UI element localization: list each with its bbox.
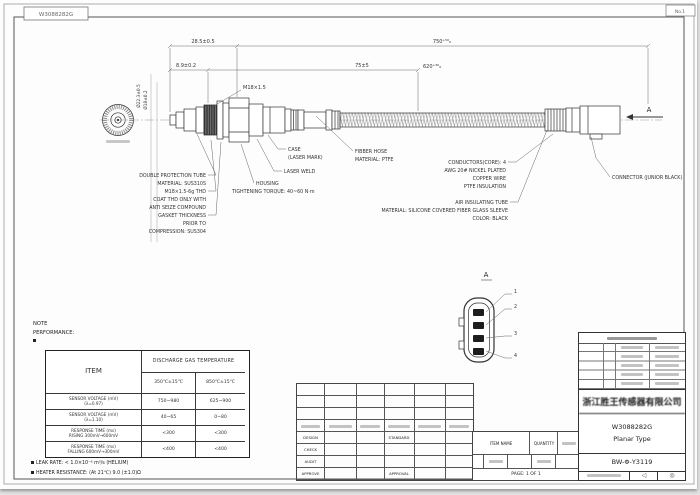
part-type: Planar Type [613,435,650,443]
callout-conductors-4: PTFE INSULATION [464,184,507,190]
perf-col2-header: 850℃±15℃ [195,372,245,393]
upper-shell [249,104,263,136]
perf-r1-v2: 0~80 [195,409,245,425]
callout-hose-1: FIBBER HOSE [355,149,387,155]
performance-label: PERFORMANCE: [33,329,74,338]
case [263,107,285,133]
callout-conductors-3: COPPER WIRE [473,176,506,182]
materials-header-blur [607,337,657,340]
part-name-box: W3088282G Planar Type [579,413,685,454]
perf-r2-v2: <300 [195,425,245,441]
connector-latch [590,134,602,139]
doc-number-box: W3088282G [24,7,88,20]
grid-line [414,384,415,480]
end-view-caption-blur [106,140,130,143]
dim-tip-length: 28.5±0.5 [191,39,214,45]
callout-thread-3: ANTI SEIZE COMPOUND [149,205,206,211]
callout-protection-tube-1: DOUBLE PROTECTION TUBE [139,173,206,179]
pin-label-3: 3 [514,331,517,337]
gasket-washer [217,101,223,139]
parts-item-name-header: ITEM NAME [473,432,529,454]
sensor-side-view [170,98,620,142]
bullet-notes: LEAK RATE: < 1.0×10⁻⁶ m³/s (HELIUM) HEAT… [31,459,141,478]
perf-r2-v1: <300 [141,425,195,441]
cell-blur [655,346,679,349]
sheet-number-text: No.1 [675,9,685,15]
perf-row-item: RESPONSE TIME (ms) RISING 300mV→600mV [46,425,141,441]
pin-label-4: 4 [514,353,517,359]
approval-row-design: DESIGN [297,432,324,444]
callouts-right: CONDUCTORS(CORE): 4 AWG 20# NICKEL PLATE… [444,134,682,190]
perf-item-header: ITEM [46,351,141,393]
parts-header-row: ITEM NAME QUANTITY [473,432,579,455]
header-blur [329,425,352,428]
cell-blur [489,460,503,463]
bullet-icon [31,461,34,464]
parts-sub-cell [555,454,580,468]
connector-tab-upper [459,318,464,326]
perf-r1-v1: 40~65 [141,409,195,425]
callout-gasket-3: COMPRESSION: SUS304 [149,229,206,235]
diameter-dimensions: Ø22.3±0.5 Ø18±0.2 [135,74,157,242]
cell-blur [621,382,643,385]
approval-row-audit: AUDIT [297,456,324,468]
protection-tube-tip [170,115,176,125]
callout-case-2: (LASER MARK) [288,155,323,161]
bullet-icon [31,471,34,474]
cell-blur [621,355,643,358]
cell-blur [655,364,679,367]
grid-line [445,384,446,480]
connector-neck [566,108,580,132]
pin-4 [473,348,484,355]
callout-air-tube-3: COLOR: BLACK [473,216,509,222]
approval-table: DESIGN STANDARD CHECK AUDIT APPROVE APPR… [296,383,474,481]
hex-housing [229,98,249,142]
thread-section [204,105,217,135]
parts-strip: ITEM NAME QUANTITY PAGE: 1 OF 1 [472,431,580,481]
dim-hose-length: 75±5 [355,63,369,69]
leak-rate-note: LEAK RATE: < 1.0×10⁻⁶ m³/s (HELIUM) [36,461,128,466]
callout-case-1: CASE [288,147,301,153]
perf-r1-item2: (λ=1.10) [84,418,103,423]
callout-conductors-1: CONDUCTORS(CORE): 4 [448,160,506,166]
title-block: 浙江胜王传感器有限公司 W3088282G Planar Type BW-Φ-Y… [578,332,686,481]
perf-r3-item2: FALLING 600mV→300mV [68,450,120,455]
parts-quantity-header: QUANTITY [529,432,558,454]
grid-line [649,343,650,389]
title-block-bottom-row: ◁ ◎ [579,471,685,480]
grid-line [324,384,325,480]
part-number: W3088282G [612,423,652,431]
parts-remark-header [557,432,580,454]
parts-sub-cell [507,454,532,468]
dim-cable-length: 620⁺³⁰₀ [423,64,441,70]
crimp-ring [291,110,298,130]
parts-page-row: PAGE: 1 OF 1 [473,468,579,480]
callout-gasket-2: PRIOR TO [183,221,206,227]
callout-laser-weld: LASER WELD [284,169,315,175]
header-blur [388,425,410,428]
pin-2 [473,322,484,329]
detail-view-a: A 1 2 3 4 [459,271,517,362]
callout-housing-2: TIGHTENING TORQUE: 40~60 N·m [231,189,315,195]
callout-thread-2: COAT THD ONLY WITH [153,197,206,203]
perf-r0-v1: 750~980 [141,393,195,409]
parts-sub-row [473,454,579,469]
materials-grid [579,343,685,389]
braided-cable [340,113,545,127]
section-arrow-a: A [626,106,663,120]
header-blur [360,425,380,428]
doc-number-text: W3088282G [39,12,73,18]
grid-line [356,384,357,480]
company-name: 浙江胜王传感器有限公司 [579,389,685,414]
callouts-left: DOUBLE PROTECTION TUBE MATERIAL: SUS310S… [139,134,221,235]
dim-thread-spec: M18×1.5 [243,85,266,91]
pin-1 [473,309,484,316]
grid-line [603,343,604,389]
connector-body [580,106,620,134]
approval-row-approve: APPROVE [297,468,324,480]
heater-resistance-note: HEATER RESISTANCE: (At 21℃) 9.0 (±1.0)Ω [36,471,141,476]
callout-connector: CONNECTOR (JUNIOR BLACK) [612,175,682,181]
projection-symbol-icon: ◁ [629,471,658,480]
dim-dia-hex: Ø22.3±0.5 [135,84,142,108]
perf-row-item: RESPONSE TIME (ms) FALLING 600mV→300mV [46,441,141,457]
header-blur [449,425,469,428]
callout-hose-2: MATERIAL: PTFE [355,157,393,163]
approval-design-note: STANDARD [384,432,414,444]
perf-row-item: SENSOR VOLTAGE (mV) (λ=0.97) [46,393,141,409]
standard-symbol-icon: ◎ [657,471,686,480]
cell-blur [655,382,679,385]
bullet-square [33,339,36,342]
perf-r0-v2: 625~900 [195,393,245,409]
cell-blur [621,346,643,349]
detail-a-label: A [484,271,489,279]
dimension-labels: 28.5±0.5 750⁺⁵⁰₀ 8.9±0.2 75±5 620⁺³⁰₀ M1… [176,39,451,91]
dim-overall-length: 750⁺⁵⁰₀ [433,39,451,45]
dim-dia-thread: Ø18±0.2 [142,90,149,110]
perf-col1-header: 350℃±15℃ [141,372,195,393]
connector-tab-lower [459,341,464,349]
performance-table: ITEM DISCHARGE GAS TEMPERATURE 350℃±15℃ … [45,350,250,458]
sensor-body [196,107,204,133]
sensor-end-view [103,105,134,144]
fiber-hose [304,112,326,128]
cell-blur [655,373,679,376]
parts-sub-cell [531,454,556,468]
pin-3 [473,335,484,342]
perf-group-header: DISCHARGE GAS TEMPERATURE [141,351,245,372]
parts-sub-cell [483,454,508,468]
perf-r2-item2: RISING 300mV→600mV [69,434,118,439]
dim-tip-small: 8.9±0.2 [176,63,196,69]
cell-blur [621,364,643,367]
cell-blur [537,460,551,463]
parts-sub-cell [473,454,483,468]
callout-housing-1: HOUSING [256,181,279,187]
header-blur [301,425,320,428]
callout-air-tube-2: MATERIAL: SILICONE COVERED FIBER GLASS S… [382,208,508,214]
cell-blur [587,474,621,477]
callout-conductors-2: AWG 20# NICKEL PLATED [444,168,506,174]
perf-row-item: SENSOR VOLTAGE (mV) (λ=1.10) [46,409,141,425]
pin-label-1: 1 [514,289,517,295]
approval-row-check: CHECK [297,444,324,456]
bottom-left-cell [579,471,629,480]
notes-heading: NOTE PERFORMANCE: [33,320,74,342]
header-blur [418,425,441,428]
approval-approve-note: APPROVAL [384,468,414,480]
perf-r3-v1: <400 [141,441,195,457]
drawing-number: BW-Φ-Y3119 [579,453,685,472]
cell-blur [655,355,679,358]
page-count: PAGE: 1 OF 1 [473,468,579,480]
perf-r0-item2: (λ=0.97) [84,402,103,407]
sheet-number-box: No.1 [666,5,695,16]
callout-air-tube-1: AIR INSULATING TUBE [455,200,508,206]
section-label-a: A [647,106,652,114]
note-label: NOTE [33,320,74,329]
callout-protection-tube-2: MATERIAL: SUS310S [157,181,206,187]
perf-r3-v2: <400 [195,441,245,457]
cell-blur [621,373,643,376]
callout-gasket-1: GASKET THICKNESS [158,213,206,219]
pin-label-2: 2 [514,304,517,310]
grid-line [615,343,616,389]
materials-table [579,333,685,390]
header-blur [562,442,576,445]
callout-thread-1: M18×1.5-6g THD [165,189,207,195]
